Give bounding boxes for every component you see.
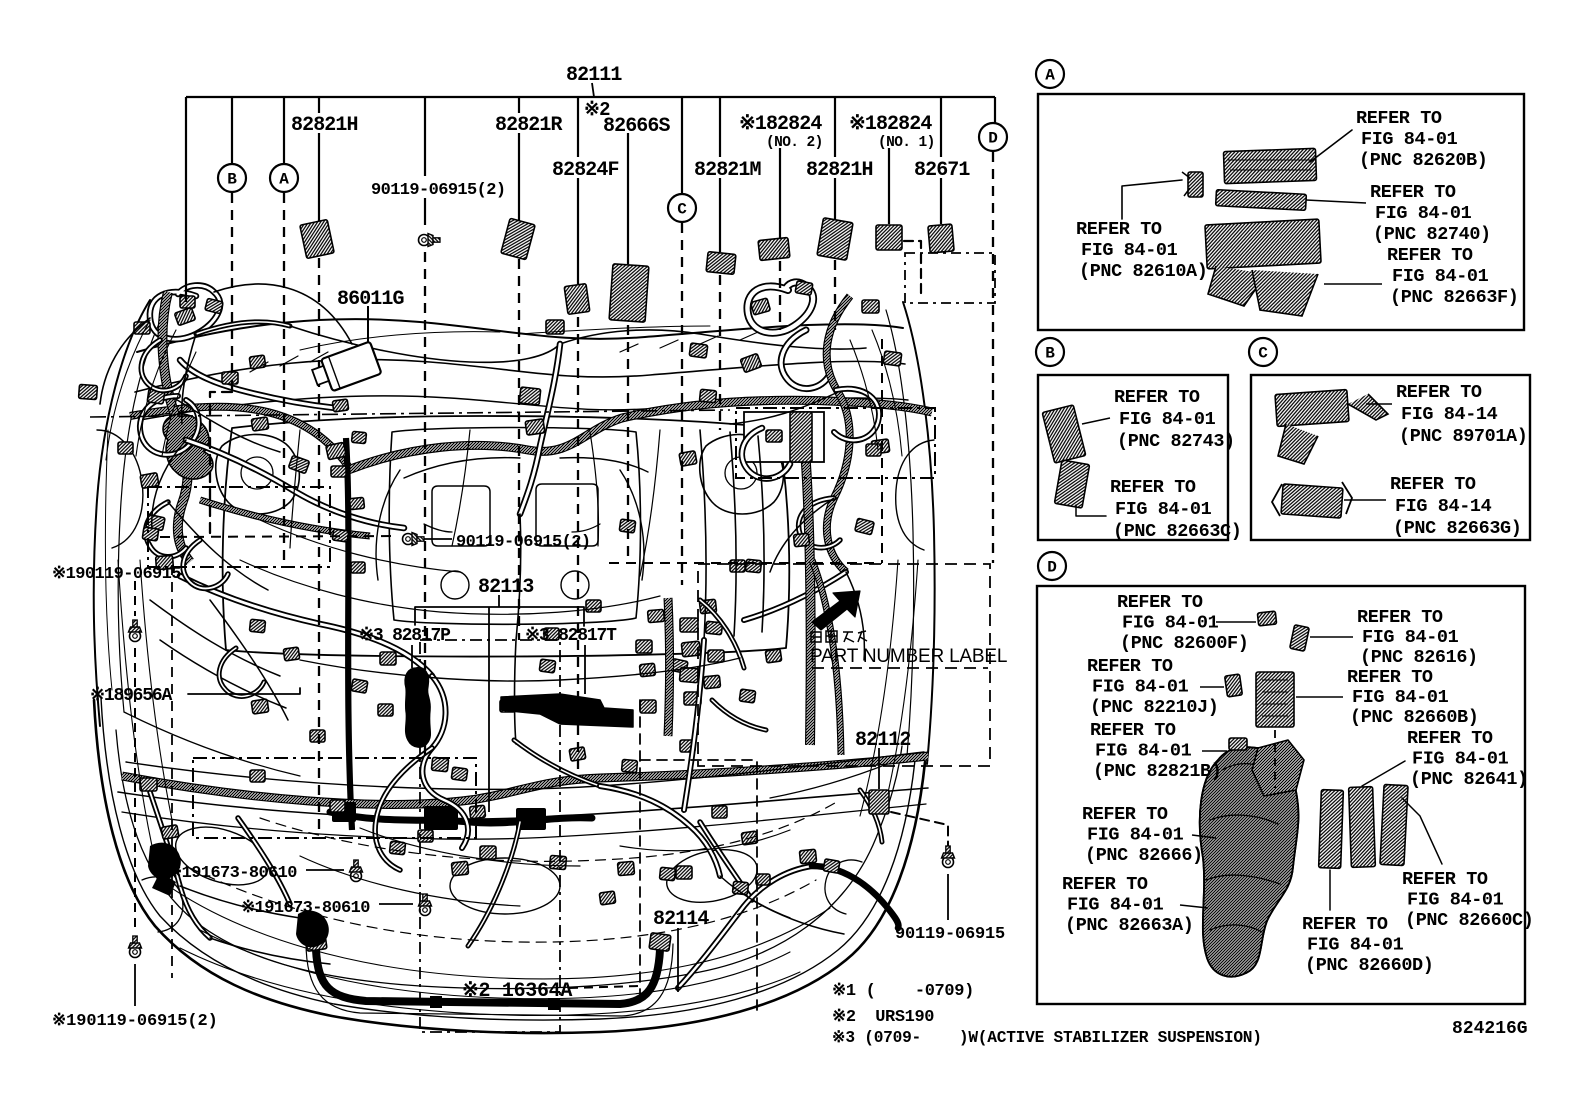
svg-text:90119-06915: 90119-06915 [895,925,1005,944]
svg-text:(PNC 82620B): (PNC 82620B) [1359,150,1487,171]
svg-text:(PNC 82663F): (PNC 82663F) [1390,287,1518,308]
svg-text:FIG 84-01: FIG 84-01 [1307,935,1404,956]
svg-text:D: D [1047,559,1057,577]
svg-text:C: C [677,201,687,219]
svg-text:REFER TO: REFER TO [1357,607,1443,628]
svg-text:82666S: 82666S [603,115,671,138]
svg-text:REFER TO: REFER TO [1114,387,1200,408]
svg-text:90119-06915(2): 90119-06915(2) [456,533,590,552]
svg-text:REFER TO: REFER TO [1090,720,1176,741]
svg-text:A: A [1045,67,1055,85]
svg-text:(PNC 82740): (PNC 82740) [1373,224,1491,245]
svg-text:FIG 84-01: FIG 84-01 [1392,266,1489,287]
svg-text:82824F: 82824F [552,159,619,182]
svg-text:(PNC 82821B): (PNC 82821B) [1093,761,1221,782]
svg-text:FIG 84-01: FIG 84-01 [1067,895,1164,916]
svg-text:90119-06915(2): 90119-06915(2) [371,181,505,200]
svg-text:86011G: 86011G [337,288,405,311]
svg-text:(PNC 82210J): (PNC 82210J) [1090,697,1218,718]
svg-text:82821H: 82821H [291,114,358,137]
svg-text:(PNC 82600F): (PNC 82600F) [1120,633,1248,654]
svg-text:(PNC 82660D): (PNC 82660D) [1305,955,1433,976]
svg-text:REFER TO: REFER TO [1302,914,1388,935]
svg-text:REFER TO: REFER TO [1087,656,1173,677]
svg-text:※3 (0709- )W(ACTIVE STABILI: ※3 (0709- )W(ACTIVE STABILIZER SUSPENSIO… [832,1029,1262,1047]
svg-text:(NO. 2): (NO. 2) [766,135,823,151]
svg-text:(PNC 82743): (PNC 82743) [1117,431,1235,452]
svg-text:(PNC 82641): (PNC 82641) [1410,769,1528,790]
svg-text:FIG 84-01: FIG 84-01 [1081,240,1178,261]
svg-text:FIG 84-14: FIG 84-14 [1395,496,1492,517]
svg-text:(PNC 82666): (PNC 82666) [1085,845,1203,866]
svg-text:※190119-06915(2): ※190119-06915(2) [52,1012,218,1031]
svg-text:FIG 84-01: FIG 84-01 [1092,677,1189,698]
svg-text:※3 82817T: ※3 82817T [525,626,617,646]
svg-text:FIG 84-01: FIG 84-01 [1115,499,1212,520]
svg-text:REFER TO: REFER TO [1407,728,1493,749]
svg-text:※191673-80610: ※191673-80610 [168,864,297,883]
svg-text:(PNC 82663C): (PNC 82663C) [1113,521,1241,542]
svg-text:PART NUMBER LABEL: PART NUMBER LABEL [810,646,1007,667]
svg-text:REFER TO: REFER TO [1402,869,1488,890]
svg-text:FIG 84-01: FIG 84-01 [1095,741,1192,762]
svg-text:(PNC 89701A): (PNC 89701A) [1399,426,1527,447]
svg-text:REFER TO: REFER TO [1062,874,1148,895]
svg-text:REFER TO: REFER TO [1347,667,1433,688]
svg-text:REFER TO: REFER TO [1117,592,1203,613]
svg-text:B: B [1045,345,1055,363]
svg-text:82113: 82113 [478,576,534,599]
svg-text:(NO. 1): (NO. 1) [878,135,935,151]
svg-text:FIG 84-01: FIG 84-01 [1361,129,1458,150]
svg-text:82114: 82114 [653,908,709,931]
svg-text:FIG 84-01: FIG 84-01 [1122,613,1219,634]
svg-text:FIG 84-01: FIG 84-01 [1352,687,1449,708]
svg-text:B: B [227,171,237,189]
svg-text:REFER TO: REFER TO [1390,474,1476,495]
svg-text:(PNC 82660C): (PNC 82660C) [1405,910,1533,931]
svg-text:※191673-80610: ※191673-80610 [241,899,370,918]
svg-text:REFER TO: REFER TO [1387,245,1473,266]
svg-text:※2 URS190: ※2 URS190 [832,1008,934,1027]
svg-text:REFER TO: REFER TO [1396,382,1482,403]
svg-text:※1 ( -0709): ※1 ( -0709) [832,982,974,1001]
svg-text:82821H: 82821H [806,159,873,182]
svg-text:REFER TO: REFER TO [1370,182,1456,203]
svg-text:(PNC 82610A): (PNC 82610A) [1079,261,1207,282]
svg-text:D: D [988,130,998,148]
svg-text:82821R: 82821R [495,114,563,137]
svg-text:※3 82817P: ※3 82817P [359,626,451,646]
svg-text:C: C [1258,345,1268,363]
svg-text:A: A [279,171,289,189]
svg-text:(PNC 82616): (PNC 82616) [1360,647,1478,668]
svg-text:※190119-06915: ※190119-06915 [52,565,181,584]
svg-text:(PNC 82663A): (PNC 82663A) [1065,915,1193,936]
svg-text:REFER TO: REFER TO [1082,804,1168,825]
svg-text:FIG 84-01: FIG 84-01 [1119,409,1216,430]
svg-text:824216G: 824216G [1452,1019,1528,1039]
svg-text:※189656A: ※189656A [90,686,172,706]
svg-text:FIG 84-01: FIG 84-01 [1412,749,1509,770]
svg-text:(PNC 82663G): (PNC 82663G) [1393,518,1521,539]
svg-text:82112: 82112 [855,729,911,752]
svg-text:REFER TO: REFER TO [1076,219,1162,240]
svg-text:(PNC 82660B): (PNC 82660B) [1350,707,1478,728]
svg-text:FIG 84-01: FIG 84-01 [1375,203,1472,224]
svg-text:82821M: 82821M [694,159,762,182]
svg-text:FIG 84-14: FIG 84-14 [1401,404,1498,425]
svg-text:REFER TO: REFER TO [1356,108,1442,129]
svg-text:※2 16364A: ※2 16364A [462,980,572,1003]
svg-text:82111: 82111 [566,64,622,87]
svg-text:※182824: ※182824 [849,113,932,136]
svg-text:82671: 82671 [914,159,970,182]
svg-text:REFER TO: REFER TO [1110,477,1196,498]
svg-text:FIG 84-01: FIG 84-01 [1362,627,1459,648]
svg-text:FIG 84-01: FIG 84-01 [1087,825,1184,846]
svg-text:FIG 84-01: FIG 84-01 [1407,890,1504,911]
svg-text:※182824: ※182824 [739,113,822,136]
